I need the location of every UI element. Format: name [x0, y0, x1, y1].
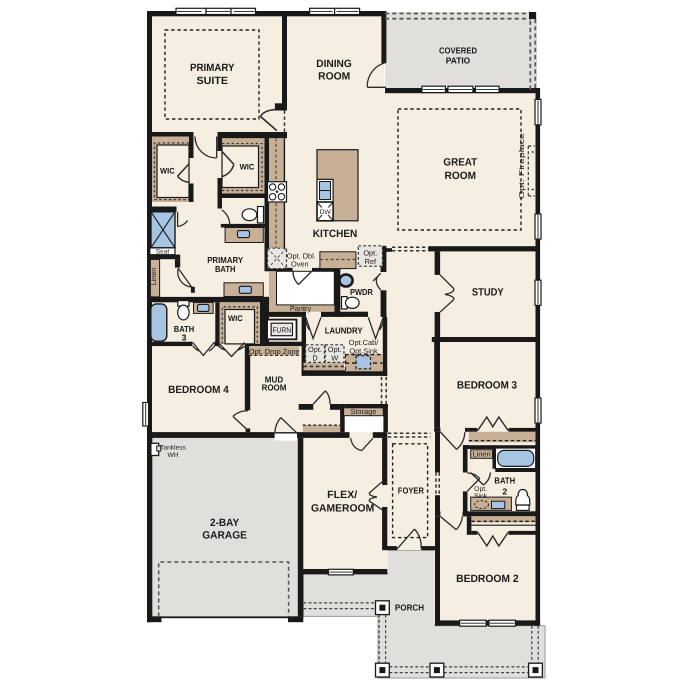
svg-text:LAUNDRY: LAUNDRY — [325, 325, 363, 335]
svg-text:DW: DW — [320, 209, 332, 216]
svg-text:KITCHEN: KITCHEN — [313, 228, 358, 240]
svg-text:PRIMARY: PRIMARY — [190, 62, 235, 74]
svg-text:Ref: Ref — [365, 257, 377, 266]
svg-text:BATH: BATH — [494, 476, 515, 486]
svg-text:Seat: Seat — [156, 249, 170, 256]
svg-text:DINING: DINING — [316, 58, 351, 70]
svg-text:Linen: Linen — [149, 268, 158, 286]
svg-text:Linen: Linen — [473, 450, 491, 459]
svg-text:COVERED: COVERED — [439, 45, 477, 55]
svg-text:2: 2 — [502, 487, 507, 497]
svg-text:ROOM: ROOM — [318, 71, 350, 83]
svg-text:Opt.Sink: Opt.Sink — [349, 346, 378, 355]
svg-text:STUDY: STUDY — [472, 287, 504, 299]
svg-text:FOYER: FOYER — [398, 486, 425, 496]
svg-text:Opt. Drop Zone: Opt. Drop Zone — [249, 347, 300, 356]
svg-text:Oven: Oven — [291, 260, 309, 269]
svg-text:WIC: WIC — [228, 314, 243, 323]
svg-text:BATH: BATH — [215, 264, 236, 274]
svg-text:PORCH: PORCH — [395, 603, 424, 613]
svg-text:PWDR: PWDR — [350, 287, 373, 297]
svg-text:Sink: Sink — [474, 493, 488, 500]
svg-text:PATIO: PATIO — [446, 56, 471, 66]
svg-text:W: W — [331, 353, 338, 362]
svg-text:2-BAY: 2-BAY — [210, 517, 239, 529]
svg-text:Tankless: Tankless — [160, 444, 186, 451]
svg-text:D: D — [312, 353, 317, 362]
svg-text:BEDROOM 2: BEDROOM 2 — [456, 573, 519, 585]
svg-text:3: 3 — [182, 333, 187, 343]
svg-text:SUITE: SUITE — [197, 75, 229, 87]
svg-text:FLEX/: FLEX/ — [327, 489, 357, 501]
svg-text:FURN: FURN — [273, 326, 292, 335]
svg-text:Opt. Fireplace: Opt. Fireplace — [517, 133, 526, 199]
svg-text:BEDROOM 3: BEDROOM 3 — [457, 379, 517, 391]
svg-text:BEDROOM 4: BEDROOM 4 — [168, 384, 229, 396]
svg-text:WH: WH — [168, 452, 179, 459]
svg-text:ROOM: ROOM — [262, 382, 287, 392]
svg-text:Pantry: Pantry — [290, 304, 312, 313]
svg-text:GARAGE: GARAGE — [202, 530, 247, 542]
svg-text:WIC: WIC — [160, 167, 175, 176]
svg-text:GREAT: GREAT — [443, 157, 477, 169]
svg-text:Storage: Storage — [350, 407, 376, 416]
svg-text:ROOM: ROOM — [445, 170, 477, 182]
svg-text:GAMEROOM: GAMEROOM — [311, 502, 374, 514]
svg-text:Opt.: Opt. — [474, 486, 487, 493]
svg-text:WIC: WIC — [240, 162, 255, 171]
